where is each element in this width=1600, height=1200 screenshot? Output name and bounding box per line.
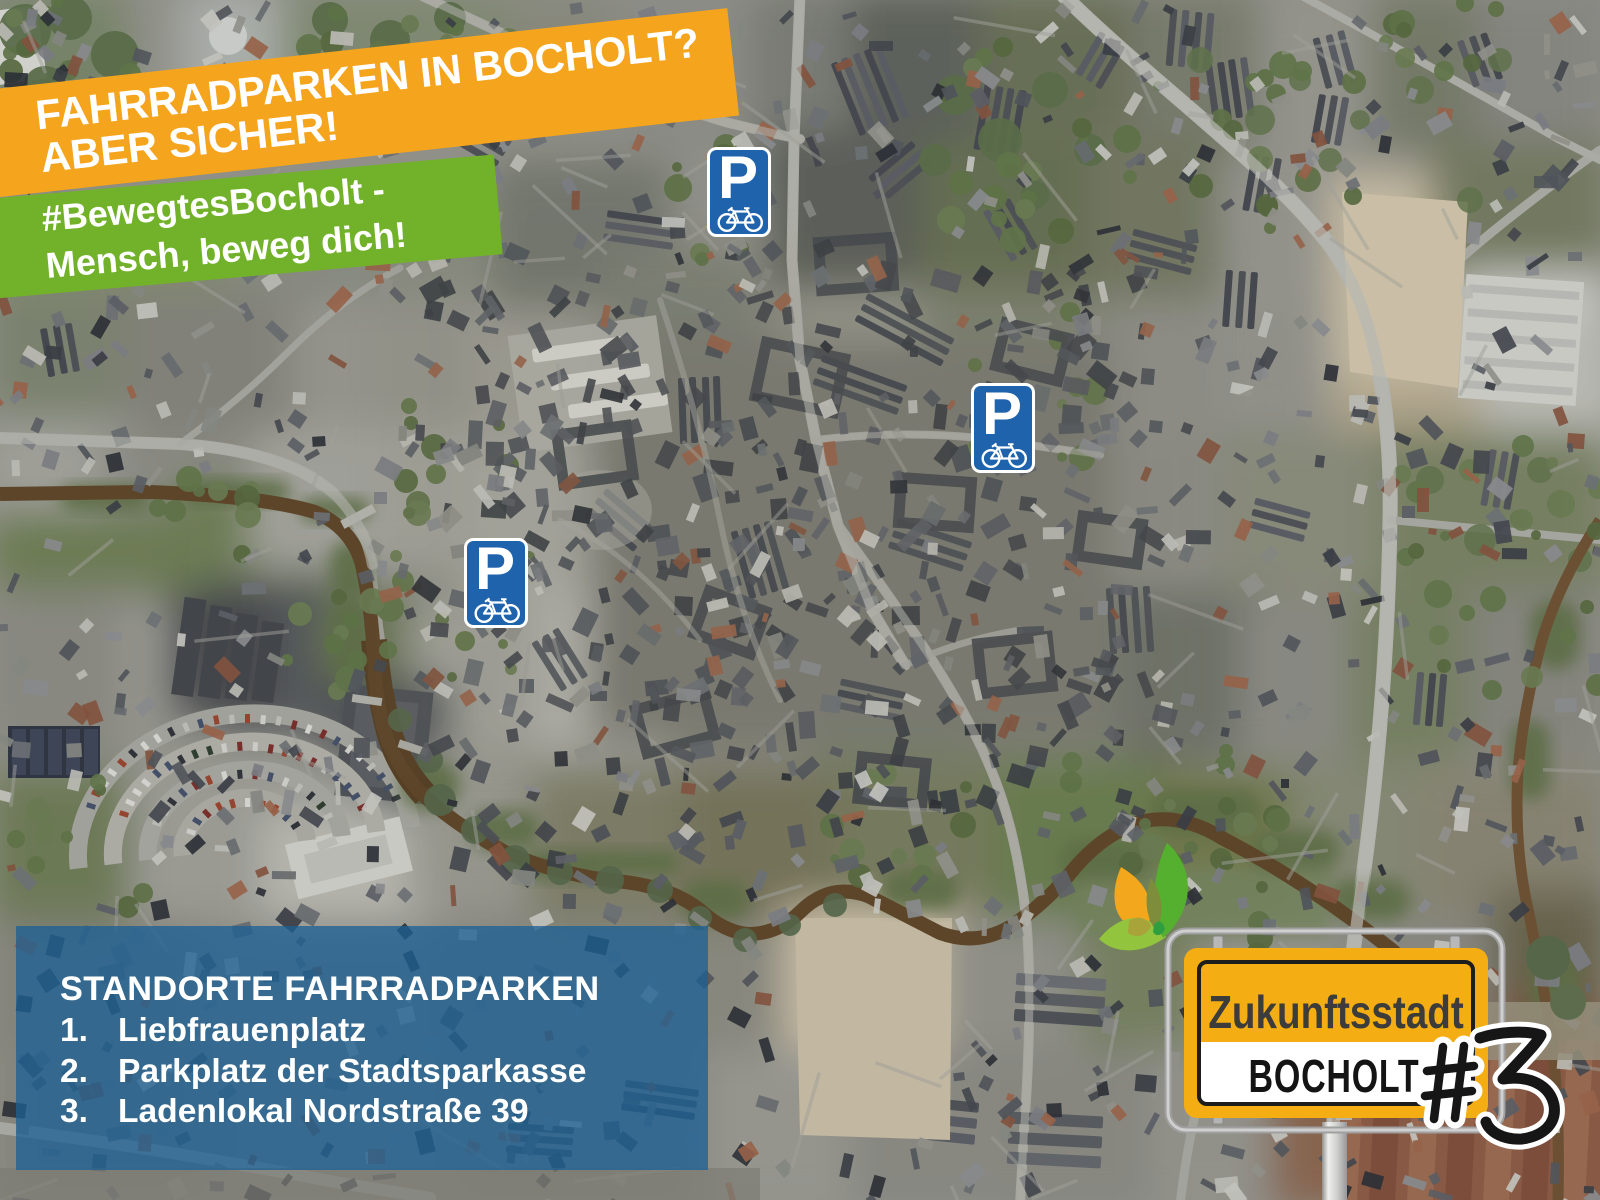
svg-text:Zukunftsstadt: Zukunftsstadt bbox=[1208, 987, 1463, 1038]
svg-text:BOCHOLT: BOCHOLT bbox=[1249, 1050, 1420, 1102]
